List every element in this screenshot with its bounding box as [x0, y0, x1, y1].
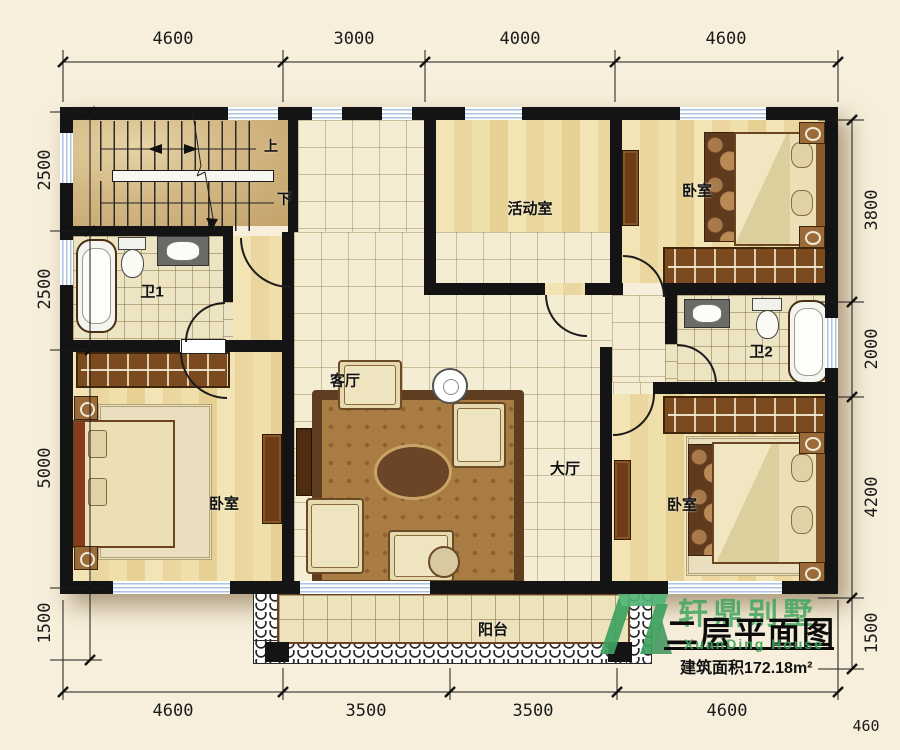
dim-right-3: 4200 [862, 462, 882, 532]
room-label-balcony: 阳台 [478, 619, 508, 640]
bathtub-1 [76, 239, 117, 333]
room-label-hall: 大厅 [550, 458, 580, 479]
nightstand-br-1 [799, 432, 825, 454]
dim-bottom-4: 4600 [692, 701, 762, 721]
stair-treads-upper [88, 121, 258, 171]
room-label-living: 客厅 [330, 370, 360, 391]
window-top-2 [312, 107, 342, 120]
window-top-5 [680, 107, 766, 120]
sink-1 [157, 236, 209, 266]
dresser-tr [622, 150, 639, 226]
dresser-br [614, 460, 631, 540]
wall-activity-right [610, 120, 622, 295]
dim-left-3: 5000 [35, 433, 55, 503]
window-left-1 [60, 133, 73, 183]
chaise-bottom-left [306, 498, 364, 574]
window-top-3 [382, 107, 412, 120]
wardrobe-tr [663, 247, 828, 287]
bed-br-pillow-2 [791, 506, 813, 534]
stair-rail [112, 170, 274, 182]
window-right-1 [825, 318, 838, 368]
room-label-bath1: 卫1 [140, 281, 163, 302]
dim-right-4: 1500 [862, 598, 882, 668]
plan-area: 建筑面积172.18m² [680, 654, 813, 678]
corridor2-floor [612, 295, 665, 382]
dim-right-2: 2000 [862, 314, 882, 384]
room-label-bedroom-tr: 卧室 [682, 180, 712, 201]
window-bottom-1 [113, 581, 230, 594]
bed-bl-pillow-1 [88, 430, 107, 458]
dim-bottom-3: 3500 [498, 701, 568, 721]
bed-br [712, 442, 828, 564]
top-hall-floor [298, 120, 424, 232]
door-gap-bedroom-br [613, 382, 653, 394]
dim-top-4: 4600 [691, 29, 761, 49]
door-gap-activity [545, 283, 585, 295]
dim-right-1: 3800 [862, 175, 882, 245]
bed-br-pillow-1 [791, 454, 813, 482]
bed-tr-pillow-2 [791, 190, 813, 216]
dim-bottom-1: 4600 [138, 701, 208, 721]
wall-activity-left [424, 120, 436, 295]
wall-bath2-left [665, 295, 677, 344]
wall-bath2-top [663, 283, 825, 295]
wardrobe-br [663, 396, 828, 434]
dresser-bl [262, 434, 282, 524]
bathtub-2 [788, 300, 829, 384]
stair-label-up: 上 [264, 136, 278, 156]
window-left-2 [60, 240, 73, 285]
wall-stair-right [288, 120, 298, 232]
window-top-1 [228, 107, 278, 120]
wall-bath1-top [73, 226, 233, 236]
bed-br-duvet-fold [714, 444, 779, 562]
dim-top-1: 4600 [138, 29, 208, 49]
bed-tr-pillow-1 [791, 142, 813, 168]
dim-corner: 460 [831, 717, 900, 735]
armchair-right [452, 402, 506, 468]
nightstand-tr-1 [799, 122, 825, 144]
dim-top-2: 3000 [319, 29, 389, 49]
bed-tr-duvet-fold [736, 134, 790, 244]
plant-pot [428, 546, 460, 578]
dim-bottom-2: 3500 [331, 701, 401, 721]
tv-cabinet-living [296, 428, 312, 496]
brand-name-en: XuanDing House [684, 636, 824, 652]
nightstand-tr-2 [799, 226, 825, 248]
nightstand-bl-1 [74, 396, 98, 420]
balcony-floor [277, 593, 630, 644]
stair-treads-lower [88, 181, 258, 231]
stair-label-down: 下 [277, 189, 291, 209]
side-table-round [432, 368, 468, 404]
dim-left-2: 2500 [35, 254, 55, 324]
dim-left-1: 2500 [35, 135, 55, 205]
dim-left-4: 1500 [35, 588, 55, 658]
toilet-1-bowl [121, 249, 144, 278]
bed-bl [73, 420, 175, 548]
sink-2 [684, 299, 730, 328]
door-gap-bath2 [665, 344, 677, 382]
room-label-bedroom-bl: 卧室 [209, 493, 239, 514]
balcony-post-left [265, 642, 289, 662]
room-label-activity: 活动室 [507, 198, 552, 219]
window-top-4 [465, 107, 522, 120]
wall-activity-bottom-a [424, 283, 545, 295]
coffee-table-oval [374, 444, 452, 500]
bed-bl-headboard [75, 422, 85, 546]
wall-hall-east [600, 347, 612, 581]
dim-top-3: 4000 [485, 29, 555, 49]
balcony-door-window [300, 581, 430, 594]
wall-bedroom-bl-top-a [73, 340, 180, 352]
room-label-bedroom-br: 卧室 [667, 494, 697, 515]
bed-bl-pillow-2 [88, 478, 107, 506]
room-label-bath2: 卫2 [749, 341, 772, 362]
nightstand-bl-2 [74, 546, 98, 570]
toilet-2-bowl [756, 310, 779, 339]
floor-plan: 活动室 卧室 卫1 卫2 客厅 大厅 卧室 卧室 阳台 上 下 4600 300… [0, 0, 900, 750]
